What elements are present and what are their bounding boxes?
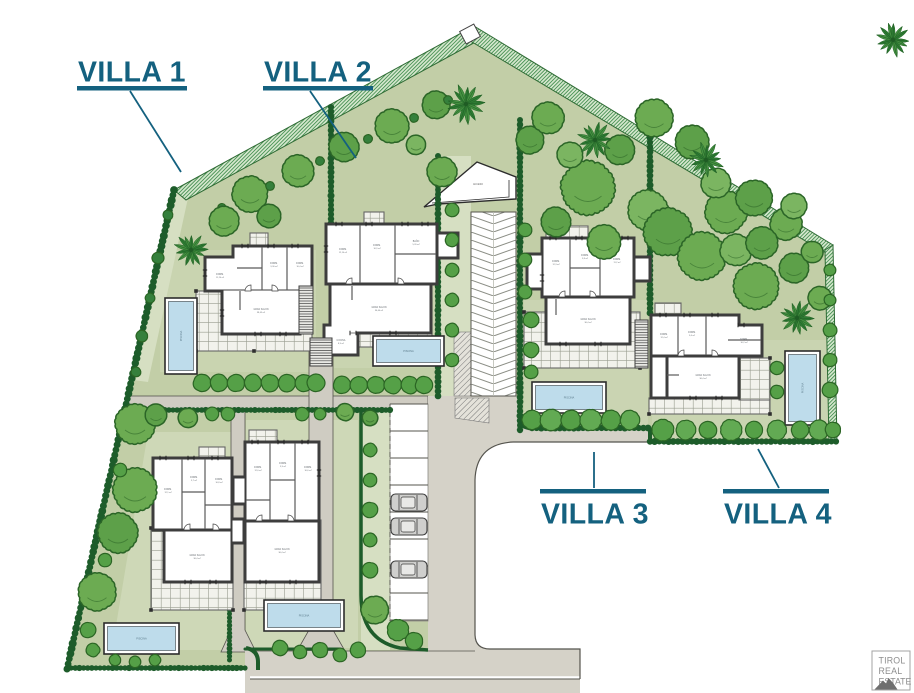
svg-text:10,9 m²: 10,9 m² — [373, 247, 380, 250]
svg-text:DORM.: DORM. — [279, 463, 287, 465]
svg-text:GRAN SALON: GRAN SALON — [253, 308, 268, 311]
svg-text:COCINA: COCINA — [337, 339, 346, 342]
svg-text:DORM.: DORM. — [304, 467, 312, 469]
svg-text:38,45 m²: 38,45 m² — [257, 311, 266, 314]
svg-text:DORM.: DORM. — [164, 489, 172, 491]
svg-text:10,2 m²: 10,2 m² — [740, 341, 747, 344]
svg-text:10,4 m²: 10,4 m² — [296, 265, 303, 268]
svg-text:10,6 m²: 10,6 m² — [304, 469, 311, 472]
svg-text:9,8 m²: 9,8 m² — [582, 257, 588, 260]
svg-text:DORM.: DORM. — [740, 339, 748, 341]
svg-text:GRAN SALON: GRAN SALON — [274, 548, 289, 551]
svg-text:VILLA 1: VILLA 1 — [78, 57, 186, 89]
svg-text:DORM.: DORM. — [552, 261, 560, 263]
svg-text:DORM.: DORM. — [613, 259, 621, 261]
svg-text:VILLA 3: VILLA 3 — [541, 499, 649, 531]
svg-text:12,1 m²: 12,1 m² — [164, 491, 171, 494]
svg-text:9,9 m²: 9,9 m² — [280, 465, 286, 468]
svg-text:11,20 m²: 11,20 m² — [216, 276, 224, 279]
svg-text:12,3 m²: 12,3 m² — [552, 263, 559, 266]
svg-text:TIROL: TIROL — [879, 656, 906, 666]
svg-text:DORM.: DORM. — [215, 479, 223, 481]
svg-text:GRAN SALON: GRAN SALON — [371, 306, 386, 309]
svg-text:GRAN SALON: GRAN SALON — [695, 374, 710, 377]
svg-text:PISCINA: PISCINA — [179, 331, 183, 342]
svg-text:36,40 m²: 36,40 m² — [375, 309, 384, 312]
svg-text:PISCINA: PISCINA — [299, 614, 310, 618]
svg-text:DORM.: DORM. — [190, 477, 198, 479]
svg-text:VILLA 4: VILLA 4 — [724, 499, 832, 531]
svg-text:DORM.: DORM. — [270, 263, 278, 265]
svg-text:DORM.: DORM. — [688, 332, 696, 334]
svg-text:DORM.: DORM. — [373, 245, 381, 247]
svg-text:DORM.: DORM. — [660, 334, 668, 336]
svg-text:36,4 m²: 36,4 m² — [584, 321, 591, 324]
svg-text:5,20 m²: 5,20 m² — [412, 243, 419, 246]
svg-text:DORM.: DORM. — [254, 467, 262, 469]
svg-text:9,7 m²: 9,7 m² — [191, 479, 197, 482]
svg-text:PISCINA: PISCINA — [136, 637, 147, 641]
svg-text:GRAN SALON: GRAN SALON — [580, 318, 595, 321]
svg-text:12,0 m²: 12,0 m² — [254, 469, 261, 472]
svg-text:9,30 m²: 9,30 m² — [270, 265, 277, 268]
svg-text:PISCINA: PISCINA — [801, 383, 805, 394]
svg-text:BAÑO: BAÑO — [413, 240, 420, 243]
svg-text:36,4 m²: 36,4 m² — [278, 551, 285, 554]
svg-text:12,10 m²: 12,10 m² — [339, 251, 348, 254]
svg-text:GRAN SALON: GRAN SALON — [189, 554, 204, 557]
svg-text:DORM.: DORM. — [216, 274, 224, 276]
svg-text:11,2 m²: 11,2 m² — [614, 261, 621, 264]
svg-text:10,8 m²: 10,8 m² — [215, 481, 222, 484]
svg-text:REAL: REAL — [879, 666, 903, 676]
svg-text:36,4 m²: 36,4 m² — [193, 557, 200, 560]
svg-text:8,9 m²: 8,9 m² — [338, 342, 344, 345]
svg-text:36,4 m²: 36,4 m² — [699, 377, 706, 380]
svg-text:DORM.: DORM. — [581, 255, 589, 257]
svg-text:PISCINA: PISCINA — [564, 396, 575, 400]
svg-text:12,4 m²: 12,4 m² — [660, 336, 667, 339]
svg-text:DORM.: DORM. — [339, 249, 347, 251]
svg-text:VILLA 2: VILLA 2 — [264, 57, 372, 89]
svg-text:ACCESO: ACCESO — [473, 183, 483, 186]
svg-text:9,6 m²: 9,6 m² — [689, 334, 695, 337]
svg-text:DORM.: DORM. — [296, 263, 304, 265]
svg-text:PISCINA: PISCINA — [403, 349, 414, 353]
